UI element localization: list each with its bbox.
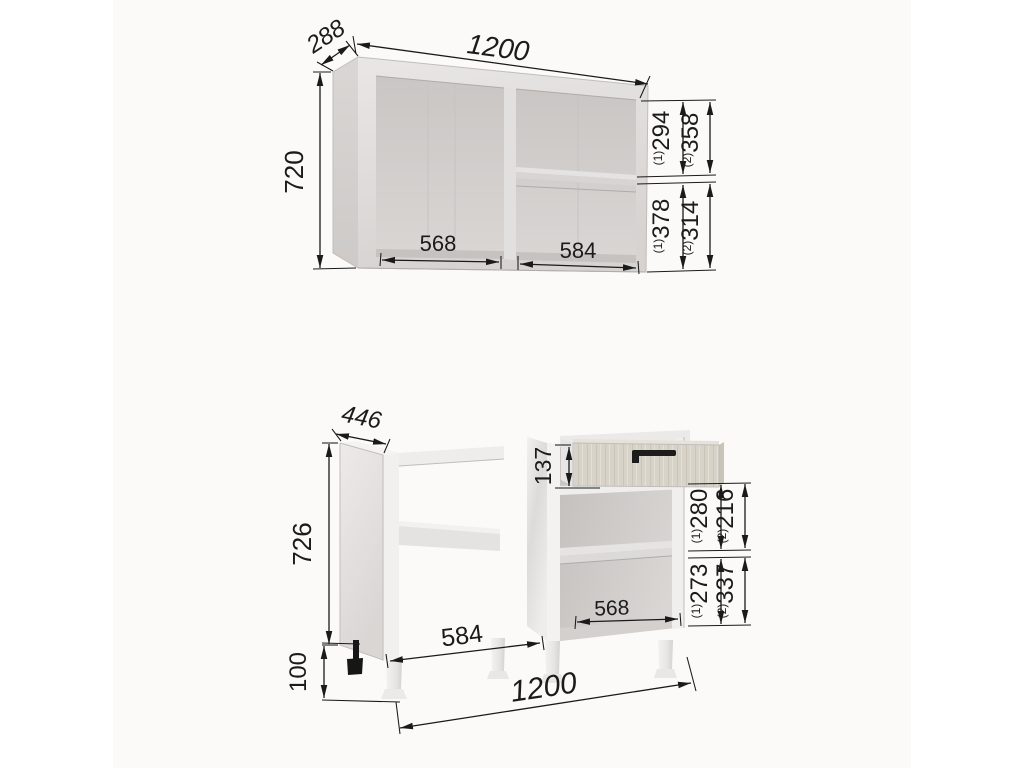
cabinet-diagram: 288 1200 720 xyxy=(0,0,1024,768)
dim-wall-depth-value: 288 xyxy=(301,14,351,59)
drawer-front xyxy=(573,443,719,487)
dim-base-left-opening: 584 xyxy=(386,620,544,668)
wall-cabinet-body xyxy=(333,57,648,272)
drawer-left-side xyxy=(561,439,573,486)
dim-wall-lower-v1: (1)378 xyxy=(648,199,675,254)
cabinet-leg-foot xyxy=(381,689,407,699)
wall-center-partition xyxy=(504,88,516,260)
base-left-panel-front-edge xyxy=(383,453,399,660)
dim-base-height-value: 726 xyxy=(287,522,317,565)
dim-wall-upper-v1: (1)294 xyxy=(648,111,675,166)
dim-base-lower-v1: (1)273 xyxy=(686,564,713,619)
dim-base-right-sections: (1)280 (2)216 (1)273 (2)337 xyxy=(686,483,751,626)
drawer-handle-tab xyxy=(632,452,639,463)
cabinet-leg xyxy=(658,640,673,669)
dim-drawer-front-value: 137 xyxy=(530,447,556,485)
dim-wall-right-opening-value: 584 xyxy=(560,238,597,263)
cabinet-leg-foot xyxy=(487,671,509,679)
drawing-sheet: 288 1200 720 xyxy=(0,0,1024,768)
base-cabinet-drawing: 446 726 100 xyxy=(285,401,751,734)
dim-wall-right-sections: (1)294 (2)358 (1)378 (2)314 xyxy=(637,100,716,272)
dim-base-upper-v2: (2)216 xyxy=(712,489,739,544)
drawer-right-side xyxy=(719,442,724,487)
dim-base-upper-v1: (1)280 xyxy=(686,489,713,544)
adjustable-foot xyxy=(347,658,363,675)
dim-base-lower-v2: (2)337 xyxy=(712,564,739,619)
dim-wall-height-value: 720 xyxy=(279,150,309,193)
base-left-panel-outer xyxy=(340,443,383,660)
wall-side-panel xyxy=(333,57,358,268)
dim-wall-upper-v2: (2)358 xyxy=(677,113,704,168)
dim-wall-left-opening-value: 568 xyxy=(420,231,457,256)
dim-base-right-opening-value: 568 xyxy=(594,596,630,620)
dim-wall-width-value: 1200 xyxy=(465,28,531,67)
dim-base-left-opening-value: 584 xyxy=(440,620,485,653)
wall-cabinet-drawing: 288 1200 720 xyxy=(279,14,716,274)
cabinet-leg xyxy=(386,661,402,689)
base-drawer xyxy=(561,439,724,487)
dim-wall-lower-v2: (2)314 xyxy=(677,201,704,256)
cabinet-leg xyxy=(491,638,505,671)
dim-base-depth-value: 446 xyxy=(339,401,384,435)
cabinet-leg-foot xyxy=(654,669,677,678)
dim-base-height: 726 xyxy=(287,443,338,645)
dim-base-leg-height-value: 100 xyxy=(285,652,312,692)
